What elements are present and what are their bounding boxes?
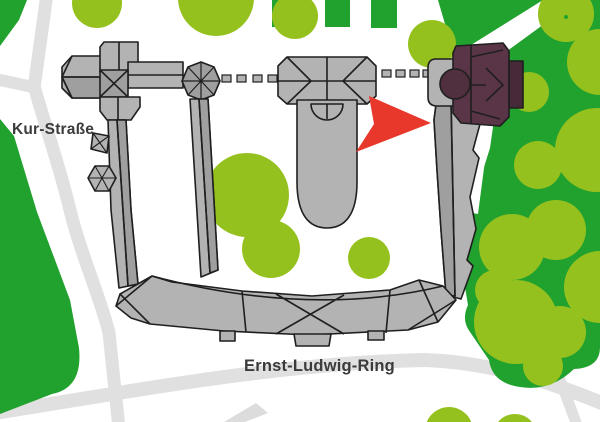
- tree-dot: [564, 15, 568, 19]
- dash: [382, 70, 391, 77]
- tree-circle-courtyard: [242, 220, 300, 278]
- map-viewport[interactable]: Kur-Straße Ernst-Ludwig-Ring: [0, 0, 600, 422]
- tree-dot: [544, 261, 549, 266]
- dash: [237, 75, 246, 82]
- street-label-ernst-ludwig-ring: Ernst-Ludwig-Ring: [244, 357, 395, 375]
- highlight-dome-tower[interactable]: [440, 69, 470, 99]
- dash: [222, 75, 231, 82]
- dash: [396, 70, 405, 77]
- facade-tooth: [220, 331, 235, 341]
- dash: [410, 70, 419, 77]
- dash: [253, 75, 262, 82]
- map-canvas[interactable]: Kur-Straße Ernst-Ludwig-Ring: [0, 0, 600, 422]
- hedge-block: [325, 0, 350, 27]
- tree-blob: [475, 270, 515, 310]
- highlight-annex[interactable]: [509, 61, 523, 108]
- street-label-kur-strasse: Kur-Straße: [12, 121, 94, 138]
- dash: [268, 75, 277, 82]
- tree-blob: [523, 346, 563, 386]
- facade-tooth: [368, 331, 384, 340]
- hedge-block: [371, 0, 397, 28]
- tree-blob: [479, 214, 545, 280]
- south-gable: [100, 97, 140, 120]
- tree-blob: [514, 141, 562, 189]
- tree-circle-courtyard: [348, 237, 390, 279]
- facade-porch: [294, 334, 331, 346]
